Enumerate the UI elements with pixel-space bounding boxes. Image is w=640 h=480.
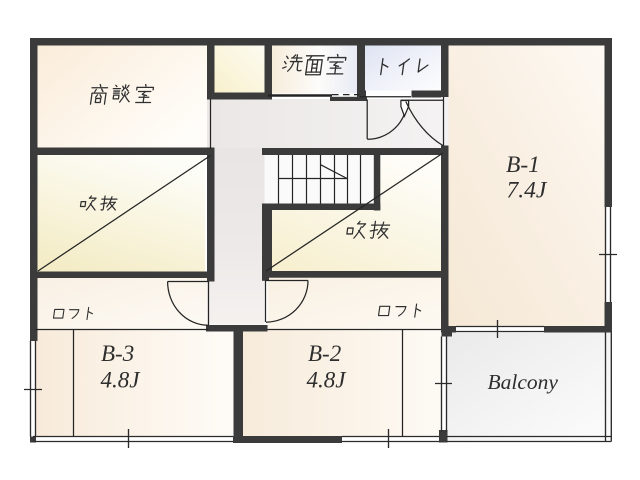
svg-text:7.4J: 7.4J	[507, 178, 548, 204]
svg-text:Balcony: Balcony	[488, 370, 559, 394]
svg-text:B-1: B-1	[506, 152, 540, 178]
svg-text:B-2: B-2	[308, 341, 341, 366]
svg-text:4.8J: 4.8J	[101, 368, 142, 393]
svg-text:B-3: B-3	[101, 341, 134, 366]
svg-text:4.8J: 4.8J	[307, 368, 348, 393]
